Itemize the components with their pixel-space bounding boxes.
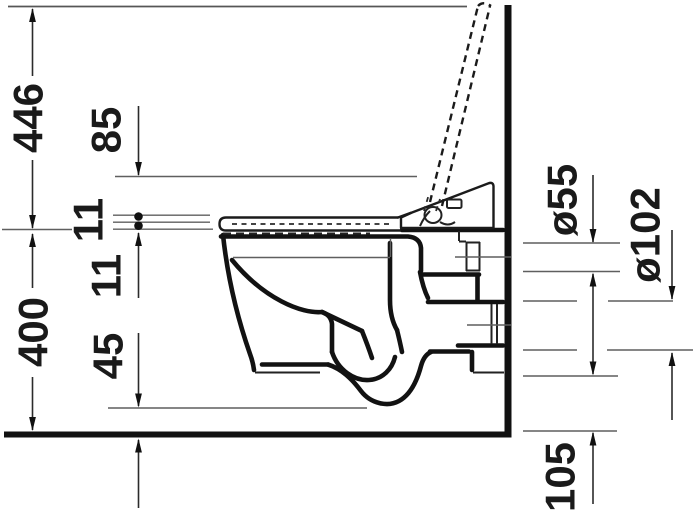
dim-label-446: 446 — [5, 83, 52, 153]
dim-label-45: 45 — [85, 333, 132, 380]
arrow-down-icon — [135, 162, 142, 176]
dim-label-d102: ø102 — [622, 187, 669, 283]
raised-lid-dashed — [424, 3, 491, 211]
arrow-up-icon — [590, 432, 597, 446]
dim-label-d55: ø55 — [539, 164, 586, 236]
unit-button — [447, 200, 462, 209]
raised-lid-tip — [478, 3, 491, 6]
dim-dot — [134, 212, 143, 221]
raised-lid-line-1 — [430, 6, 478, 202]
arrow-up-icon — [29, 233, 36, 247]
front-outer-edge — [223, 235, 254, 370]
dim-dot — [134, 221, 143, 230]
toilet-body — [221, 230, 504, 404]
bowl-bottom — [322, 312, 362, 331]
dim-label-105: 105 — [537, 442, 584, 512]
dim-label-11-lid: 11 — [65, 198, 112, 242]
dim-label-11-seat: 11 — [83, 254, 130, 298]
arrow-down-icon — [590, 229, 597, 243]
arrow-down-icon — [135, 394, 142, 408]
dim-11-11: 11 11 — [65, 198, 143, 298]
arrow-up-icon — [29, 8, 36, 22]
dim-45: 45 — [85, 333, 142, 508]
arrow-down-icon — [29, 215, 36, 229]
drawing-svg: 446 85 11 11 400 45 ø55 — [0, 0, 700, 519]
bowl-inner-sweep — [232, 260, 322, 312]
flush-pipe — [455, 231, 511, 271]
toilet-seat-lid — [220, 213, 412, 234]
outlet-channel-right — [397, 330, 402, 352]
arrow-up-icon — [590, 273, 597, 287]
dim-446: 446 — [5, 8, 52, 229]
trap-inner — [332, 352, 395, 380]
arrow-up-icon — [135, 439, 142, 453]
sensowash-unit — [401, 183, 494, 228]
dim-85: 85 — [83, 106, 142, 176]
arrow-down-icon — [669, 286, 676, 300]
dim-400: 400 — [10, 233, 57, 431]
drain-pipe — [467, 304, 511, 344]
dim-d55: ø55 — [539, 164, 597, 376]
arrow-down-icon — [29, 417, 36, 431]
dim-d102: ø102 — [622, 187, 676, 420]
technical-drawing: 446 85 11 11 400 45 ø55 — [0, 0, 700, 519]
floor — [4, 432, 512, 438]
arrow-down-icon — [590, 362, 597, 376]
arrow-up-icon — [135, 232, 142, 246]
dim-105: 105 — [537, 432, 597, 513]
outlet-channel-left — [362, 331, 372, 358]
dim-label-85: 85 — [83, 107, 130, 154]
arrow-up-icon — [669, 352, 676, 366]
wall — [505, 5, 512, 433]
drain-pipe-stub — [492, 304, 498, 344]
dim-label-400: 400 — [10, 297, 57, 367]
raised-lid-line-2 — [442, 6, 490, 206]
